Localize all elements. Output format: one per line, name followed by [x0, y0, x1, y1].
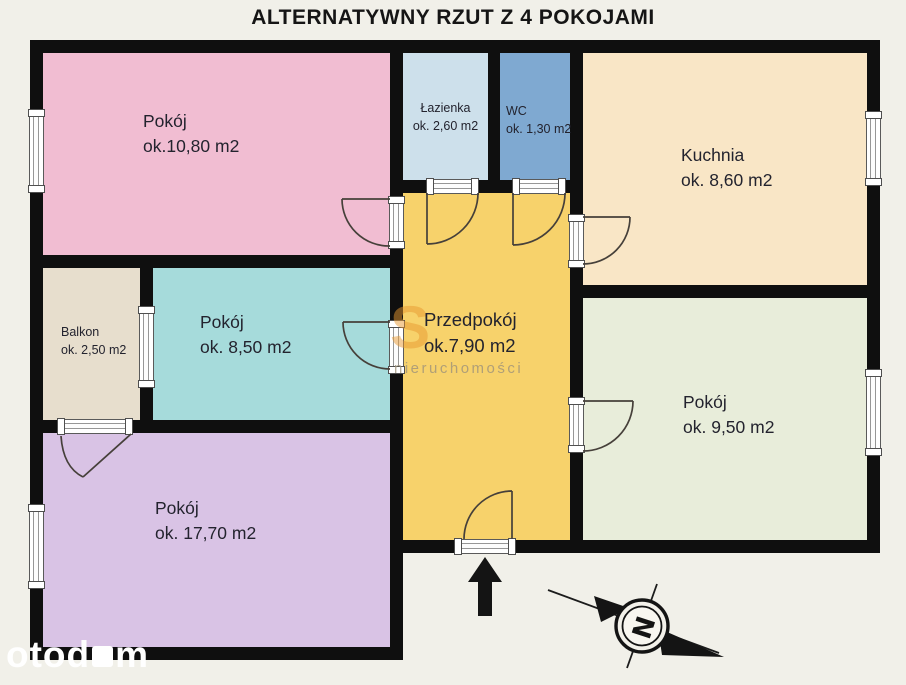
room-area: ok. 17,70 m2 — [155, 521, 256, 546]
room-area: ok. 8,50 m2 — [200, 335, 291, 360]
room-name: WC — [506, 103, 571, 121]
portal-watermark-logo: otodm — [6, 634, 149, 676]
room-area: ok.7,90 m2 — [424, 333, 517, 359]
room-name: Pokój — [143, 109, 239, 134]
door-swing-wc — [513, 193, 565, 245]
room-name: Pokój — [683, 390, 774, 415]
room-name: Łazienka — [403, 100, 488, 118]
room-name: Kuchnia — [681, 143, 772, 168]
page-title: ALTERNATYWNY RZUT Z 4 POKOJAMI — [0, 6, 906, 30]
entrance-arrow-icon — [468, 557, 502, 616]
door-swing-balkon — [61, 434, 131, 477]
room-area: ok. 8,60 m2 — [681, 168, 772, 193]
room-area: ok. 2,50 m2 — [61, 342, 126, 360]
door-swing-pokoj3 — [583, 401, 633, 451]
compass-rose-icon: N — [548, 584, 724, 668]
room-name: Pokój — [200, 310, 291, 335]
room-area: ok. 1,30 m2 — [506, 121, 571, 139]
room-name: Balkon — [61, 324, 126, 342]
door-swing-kuchnia — [583, 217, 630, 264]
floor-plan-page: ALTERNATYWNY RZUT Z 4 POKOJAMI Pokój ok.… — [0, 0, 906, 685]
door-swing-lazienka — [427, 193, 478, 244]
door-swing-pokoj1 — [342, 199, 390, 246]
room-area: ok. 9,50 m2 — [683, 415, 774, 440]
door-swing-entry — [464, 491, 512, 539]
room-area: ok.10,80 m2 — [143, 134, 239, 159]
room-name: Pokój — [155, 496, 256, 521]
door-swing-pokoj2 — [343, 322, 390, 369]
room-name: Przedpokój — [424, 307, 517, 333]
portal-logo-square-icon — [92, 646, 113, 667]
agency-watermark-text: nieruchomości — [394, 360, 523, 377]
room-area: ok. 2,60 m2 — [403, 118, 488, 136]
